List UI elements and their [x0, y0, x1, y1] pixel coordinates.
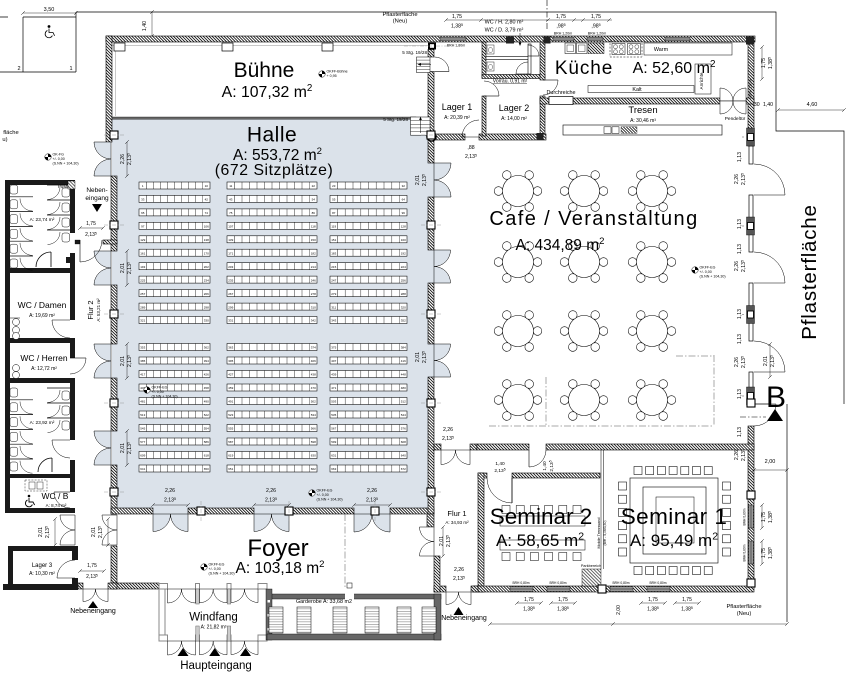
svg-text:WC / Herren: WC / Herren [20, 353, 68, 363]
svg-text:10: 10 [205, 184, 209, 188]
svg-text:+ 0,95: + 0,95 [327, 74, 337, 78]
svg-text:PuMi: PuMi [58, 184, 68, 189]
svg-text:554: 554 [204, 427, 209, 431]
svg-text:Cafe / Veranstaltung: Cafe / Veranstaltung [489, 208, 698, 230]
svg-text:+/- 0,00: +/- 0,00 [53, 157, 65, 161]
svg-text:491: 491 [228, 400, 233, 404]
svg-text:u): u) [2, 137, 7, 143]
svg-text:(S.NN + 104,30): (S.NN + 104,30) [317, 497, 343, 501]
svg-text:75: 75 [229, 211, 233, 215]
svg-text:586: 586 [204, 440, 209, 444]
svg-text:2,01: 2,01 [763, 356, 769, 366]
svg-text:651: 651 [228, 467, 233, 471]
svg-text:BRH 0,80m: BRH 0,80m [743, 508, 747, 525]
svg-text:Pflasterfläche: Pflasterfläche [726, 604, 761, 610]
svg-text:257: 257 [140, 292, 145, 296]
svg-text:2,26: 2,26 [443, 427, 453, 433]
svg-text:Pflasterfläche: Pflasterfläche [382, 12, 417, 18]
svg-text:470: 470 [311, 386, 316, 390]
svg-text:A: 95,49 m2: A: 95,49 m2 [630, 531, 718, 551]
svg-text:171: 171 [228, 251, 233, 255]
svg-text:WC / B: WC / B [42, 491, 69, 501]
svg-text:Haupteingang: Haupteingang [180, 660, 252, 672]
svg-text:2,26: 2,26 [165, 488, 175, 494]
svg-text:BRH 1,20m: BRH 1,20m [588, 32, 607, 36]
svg-text:5 Stg. 19/28: 5 Stg. 19/28 [383, 117, 408, 122]
svg-text:394: 394 [204, 359, 209, 363]
svg-text:522: 522 [204, 413, 209, 417]
svg-text:87: 87 [332, 211, 336, 215]
svg-text:599: 599 [331, 440, 336, 444]
svg-text:471: 471 [331, 386, 336, 390]
svg-text:(S.NN + 104,30): (S.NN + 104,30) [53, 161, 79, 165]
svg-text:1,75: 1,75 [761, 548, 767, 558]
svg-text:663: 663 [331, 467, 336, 471]
svg-text:416: 416 [401, 359, 406, 363]
svg-text:503: 503 [331, 400, 336, 404]
svg-text:1,13: 1,13 [737, 427, 743, 437]
svg-text:235: 235 [228, 278, 233, 282]
svg-text:BRH 1,20m: BRH 1,20m [554, 32, 573, 36]
svg-text:A: 23,74 m²: A: 23,74 m² [30, 217, 55, 223]
svg-text:1,75: 1,75 [524, 597, 534, 603]
svg-text:439: 439 [331, 373, 336, 377]
svg-text:+/- 0,00: +/- 0,00 [152, 390, 164, 394]
svg-text:OKFF-EG: OKFF-EG [700, 266, 716, 270]
svg-text:448: 448 [401, 373, 406, 377]
svg-text:1,75: 1,75 [682, 597, 692, 603]
svg-text:618: 618 [204, 454, 209, 458]
svg-text:278: 278 [311, 292, 316, 296]
svg-text:1,75: 1,75 [591, 14, 601, 20]
svg-text:A: 12,72 m²: A: 12,72 m² [31, 366, 57, 372]
svg-text:BRH 0,80m: BRH 0,80m [512, 581, 529, 585]
svg-text:A: 103,18 m2: A: 103,18 m2 [236, 559, 325, 577]
svg-text:Foyer: Foyer [247, 535, 308, 562]
svg-text:2,01: 2,01 [120, 356, 126, 366]
svg-text:5 Stg. 19/28: 5 Stg. 19/28 [402, 50, 427, 55]
svg-text:577: 577 [140, 440, 145, 444]
svg-text:407: 407 [331, 359, 336, 363]
svg-text:2,26: 2,26 [734, 261, 740, 271]
svg-text:576: 576 [401, 427, 406, 431]
svg-text:118: 118 [311, 225, 316, 229]
svg-text:353: 353 [140, 346, 145, 350]
svg-text:32: 32 [402, 184, 406, 188]
svg-text:WC / Damen: WC / Damen [18, 300, 67, 310]
svg-text:214: 214 [311, 265, 316, 269]
svg-text:55: 55 [332, 198, 336, 202]
svg-text:A: 53,21 m²: A: 53,21 m² [96, 298, 101, 322]
svg-text:555: 555 [228, 427, 233, 431]
svg-text:2: 2 [17, 66, 20, 72]
svg-text:BRH 1,80m: BRH 1,80m [447, 44, 466, 48]
svg-text:459: 459 [228, 386, 233, 390]
svg-text:2,00: 2,00 [765, 459, 776, 465]
svg-text:1,13: 1,13 [737, 152, 743, 162]
svg-text:OKFF-EG: OKFF-EG [209, 563, 225, 567]
svg-text:11: 11 [229, 184, 232, 188]
svg-text:2,26: 2,26 [454, 567, 464, 573]
svg-text:Nebeneingang: Nebeneingang [441, 615, 487, 622]
svg-text:224: 224 [401, 265, 406, 269]
svg-text:427: 427 [228, 373, 233, 377]
svg-text:Warm: Warm [654, 47, 669, 53]
svg-text:,88: ,88 [467, 145, 474, 151]
svg-text:225: 225 [140, 278, 145, 282]
svg-text:193: 193 [140, 265, 145, 269]
svg-text:Neben-: Neben- [86, 187, 107, 194]
svg-text:42: 42 [205, 198, 209, 202]
svg-text:A: 34,93 m²: A: 34,93 m² [445, 520, 469, 525]
svg-text:128: 128 [401, 225, 406, 229]
svg-text:Parkbereich: Parkbereich [581, 564, 601, 568]
svg-text:1,13: 1,13 [737, 334, 743, 344]
svg-text:138: 138 [204, 238, 209, 242]
svg-text:374: 374 [311, 346, 316, 350]
svg-text:151: 151 [331, 238, 336, 242]
svg-text:A: 21,82 m³: A: 21,82 m³ [201, 625, 227, 631]
svg-text:2,26: 2,26 [367, 488, 377, 494]
svg-text:426: 426 [204, 373, 209, 377]
svg-text:385: 385 [140, 359, 145, 363]
svg-text:631: 631 [331, 454, 336, 458]
svg-text:1,13: 1,13 [737, 309, 743, 319]
svg-text:Lager 3: Lager 3 [32, 563, 53, 569]
svg-text:1,75: 1,75 [558, 597, 568, 603]
svg-text:641: 641 [140, 467, 145, 471]
svg-text:Lager 1: Lager 1 [442, 102, 473, 112]
svg-text:Halle: Halle [247, 124, 297, 147]
svg-text:1,75: 1,75 [761, 58, 767, 68]
svg-text:BRH 1,80m: BRH 1,80m [749, 79, 753, 97]
svg-text:1,75: 1,75 [87, 563, 97, 569]
svg-text:160: 160 [401, 238, 406, 242]
svg-text:A: 30,46 m³: A: 30,46 m³ [630, 118, 656, 124]
svg-text:OKFF-Bühne: OKFF-Bühne [327, 70, 348, 74]
svg-text:598: 598 [311, 440, 316, 444]
svg-text:320: 320 [401, 305, 406, 309]
svg-text:1,75: 1,75 [761, 512, 767, 522]
svg-text:Nebeneingang: Nebeneingang [70, 608, 116, 615]
svg-text:2,01: 2,01 [439, 536, 445, 546]
svg-text:Seminar 2: Seminar 2 [490, 504, 593, 529]
svg-text:512: 512 [401, 400, 406, 404]
svg-text:+/- 0,00: +/- 0,00 [209, 567, 221, 571]
svg-text:Tresen: Tresen [628, 105, 657, 116]
svg-text:267: 267 [228, 292, 233, 296]
svg-text:2,26: 2,26 [120, 154, 126, 164]
svg-text:587: 587 [228, 440, 233, 444]
svg-text:183: 183 [331, 251, 336, 255]
svg-text:192: 192 [401, 251, 406, 255]
svg-text:64: 64 [402, 198, 406, 202]
svg-text:545: 545 [140, 427, 145, 431]
svg-text:502: 502 [311, 400, 316, 404]
svg-text:662: 662 [311, 467, 316, 471]
svg-text:203: 203 [228, 265, 233, 269]
svg-text:65: 65 [141, 211, 145, 215]
svg-text:417: 417 [140, 373, 145, 377]
svg-text:Garderobe A: 33,68 m2: Garderobe A: 33,68 m2 [296, 599, 352, 605]
svg-text:321: 321 [140, 319, 145, 323]
svg-text:2,26: 2,26 [734, 450, 740, 460]
svg-text:3,50: 3,50 [44, 7, 55, 13]
svg-text:2,26: 2,26 [734, 174, 740, 184]
svg-text:182: 182 [311, 251, 316, 255]
svg-text:535: 535 [331, 413, 336, 417]
svg-text:406: 406 [311, 359, 316, 363]
svg-text:362: 362 [204, 346, 209, 350]
svg-text:A: 58,65 m2: A: 58,65 m2 [496, 531, 584, 551]
svg-text:566: 566 [311, 427, 316, 431]
svg-text:1,75: 1,75 [452, 14, 462, 20]
svg-text:1,40: 1,40 [542, 461, 548, 471]
svg-text:86: 86 [312, 211, 316, 215]
svg-text:(Neu): (Neu) [737, 611, 752, 617]
svg-text:Mobile Trennwand: Mobile Trennwand [597, 517, 601, 548]
svg-text:2,26: 2,26 [266, 488, 276, 494]
svg-text:WC / H. 2,80 m²: WC / H. 2,80 m² [485, 20, 524, 26]
svg-text:608: 608 [401, 440, 406, 444]
svg-text:1,75: 1,75 [556, 14, 566, 20]
svg-text:fläche: fläche [3, 130, 18, 136]
svg-text:330: 330 [204, 319, 209, 323]
svg-text:A: 8,74 m²: A: 8,74 m² [46, 503, 67, 508]
svg-text:363: 363 [228, 346, 233, 350]
svg-text:170: 170 [204, 251, 209, 255]
svg-text:395: 395 [228, 359, 233, 363]
svg-text:266: 266 [204, 292, 209, 296]
svg-text:1,13: 1,13 [737, 389, 743, 399]
svg-text:2,26: 2,26 [734, 357, 740, 367]
svg-text:Küche: Küche [555, 58, 613, 79]
svg-text:247: 247 [331, 278, 336, 282]
svg-text:490: 490 [204, 400, 209, 404]
svg-text:2,01: 2,01 [120, 263, 126, 273]
svg-text:352: 352 [401, 319, 406, 323]
svg-text:A: 434,89 m2: A: 434,89 m2 [516, 236, 605, 254]
svg-text:150: 150 [311, 238, 316, 242]
svg-text:202: 202 [204, 265, 209, 269]
svg-text:97: 97 [141, 225, 145, 229]
svg-text:BRH 0,80m: BRH 0,80m [649, 581, 666, 585]
svg-text:OKFF-EG: OKFF-EG [152, 386, 168, 390]
svg-text:215: 215 [331, 265, 336, 269]
svg-text:1: 1 [69, 66, 72, 72]
svg-text:375: 375 [331, 346, 336, 350]
svg-text:544: 544 [401, 413, 406, 417]
svg-text:458: 458 [204, 386, 209, 390]
svg-text:B: B [766, 381, 786, 414]
svg-text:299: 299 [228, 305, 233, 309]
svg-text:630: 630 [311, 454, 316, 458]
svg-text:640: 640 [401, 454, 406, 458]
svg-text:2,01: 2,01 [415, 175, 421, 185]
svg-text:1,75: 1,75 [648, 597, 658, 603]
svg-text:Pflasterfläche: Pflasterfläche [798, 204, 821, 339]
svg-text:481: 481 [140, 400, 145, 404]
svg-text:(B/H - 5,06/3,50): (B/H - 5,06/3,50) [603, 520, 607, 545]
svg-text:(S.NN + 104,30): (S.NN + 104,30) [700, 274, 726, 278]
svg-text:161: 161 [140, 251, 145, 255]
svg-text:119: 119 [331, 225, 336, 229]
svg-text:+/- 0,00: +/- 0,00 [700, 270, 712, 274]
svg-text:(672 Sitzplätze): (672 Sitzplätze) [215, 162, 334, 179]
svg-text:2,01: 2,01 [38, 527, 44, 537]
svg-text:96: 96 [402, 211, 406, 215]
svg-text:609: 609 [140, 454, 145, 458]
svg-text:2,01: 2,01 [415, 352, 421, 362]
svg-text:Kalt: Kalt [632, 87, 642, 93]
svg-text:BRH 0,80m: BRH 0,80m [612, 581, 629, 585]
svg-text:480: 480 [401, 386, 406, 390]
svg-text:33: 33 [141, 198, 145, 202]
svg-text:1,40: 1,40 [763, 102, 773, 108]
svg-text:331: 331 [228, 319, 233, 323]
svg-text:Seminar 1: Seminar 1 [621, 504, 728, 529]
svg-text:Windfang: Windfang [189, 612, 238, 624]
svg-text:1,40: 1,40 [495, 461, 505, 467]
svg-text:672: 672 [401, 467, 406, 471]
svg-text:A: 10,30 m²: A: 10,30 m² [29, 571, 55, 577]
svg-text:(Neu): (Neu) [393, 19, 408, 25]
svg-text:74: 74 [205, 211, 209, 215]
svg-text:288: 288 [401, 292, 406, 296]
svg-text:650: 650 [204, 467, 209, 471]
svg-text:A: 14,00 m²: A: 14,00 m² [501, 116, 527, 122]
svg-text:Flur 2: Flur 2 [86, 300, 95, 319]
svg-text:Flur 1: Flur 1 [447, 509, 466, 518]
svg-text:A: 107,32 m2: A: 107,32 m2 [222, 83, 313, 101]
svg-text:246: 246 [311, 278, 316, 282]
svg-text:2,01: 2,01 [120, 443, 126, 453]
svg-text:256: 256 [401, 278, 406, 282]
svg-text:310: 310 [311, 305, 316, 309]
svg-text:438: 438 [311, 373, 316, 377]
svg-text:A: 19,69 m²: A: 19,69 m² [29, 313, 55, 319]
svg-text:343: 343 [331, 319, 336, 323]
svg-text:OK-FG: OK-FG [53, 153, 65, 157]
svg-text:WC / D. 3,79 m²: WC / D. 3,79 m² [485, 28, 524, 34]
svg-text:1,13: 1,13 [737, 219, 743, 229]
svg-text:(S.NN + 104,30): (S.NN + 104,30) [152, 394, 178, 398]
svg-text:1,13: 1,13 [737, 244, 743, 254]
svg-text:+/- 0,00: +/- 0,00 [317, 493, 329, 497]
svg-text:Lager 2: Lager 2 [499, 103, 530, 113]
svg-text:619: 619 [228, 454, 233, 458]
svg-text:1,40: 1,40 [142, 21, 148, 31]
svg-text:523: 523 [228, 413, 233, 417]
svg-text:2,00: 2,00 [616, 605, 622, 615]
svg-text:534: 534 [311, 413, 316, 417]
svg-text:OKFF-EG: OKFF-EG [317, 489, 333, 493]
svg-text:4,60: 4,60 [807, 102, 818, 108]
svg-text:139: 139 [228, 238, 233, 242]
svg-text:eingang: eingang [85, 195, 109, 202]
svg-text:54: 54 [312, 198, 316, 202]
svg-text:279: 279 [331, 292, 336, 296]
svg-text:BRH 0,80m: BRH 0,80m [743, 544, 747, 561]
svg-text:513: 513 [140, 413, 145, 417]
svg-text:22: 22 [312, 184, 316, 188]
svg-text:Bühne: Bühne [234, 59, 295, 82]
svg-text:129: 129 [140, 238, 145, 242]
svg-text:A: 20,39 m²: A: 20,39 m² [444, 115, 470, 121]
svg-text:2,01: 2,01 [91, 527, 97, 537]
svg-text:311: 311 [331, 305, 336, 309]
svg-text:384: 384 [401, 346, 406, 350]
svg-text:298: 298 [204, 305, 209, 309]
svg-text:43: 43 [229, 198, 233, 202]
svg-text:Pendeltür: Pendeltür [725, 116, 746, 122]
svg-text:23: 23 [332, 184, 336, 188]
svg-text:107: 107 [228, 225, 233, 229]
svg-text:(S.NN + 104,30): (S.NN + 104,30) [209, 571, 235, 575]
svg-text:A: 23,92 m²: A: 23,92 m² [30, 420, 55, 426]
svg-text:BRH 0,80m: BRH 0,80m [549, 581, 566, 585]
svg-text:A: 52,60 m2: A: 52,60 m2 [633, 59, 716, 77]
svg-text:289: 289 [140, 305, 145, 309]
svg-text:567: 567 [331, 427, 336, 431]
svg-text:234: 234 [204, 278, 209, 282]
svg-text:1,75: 1,75 [86, 221, 96, 227]
svg-text:106: 106 [204, 225, 209, 229]
svg-text:342: 342 [311, 319, 316, 323]
